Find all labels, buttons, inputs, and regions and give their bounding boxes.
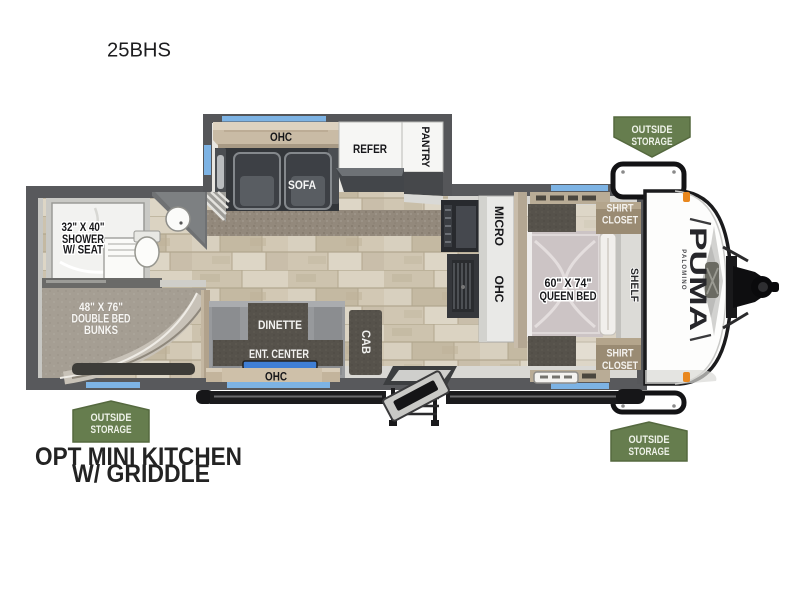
svg-text:STORAGE: STORAGE	[629, 446, 670, 458]
svg-text:OUTSIDE: OUTSIDE	[629, 434, 670, 446]
svg-text:STORAGE: STORAGE	[632, 136, 673, 148]
svg-text:QUEEN BED: QUEEN BED	[540, 289, 597, 303]
svg-text:60" X 74": 60" X 74"	[545, 276, 592, 290]
svg-text:OUTSIDE: OUTSIDE	[632, 124, 673, 136]
svg-text:BUNKS: BUNKS	[84, 323, 118, 337]
svg-text:PUMA: PUMA	[684, 227, 711, 331]
svg-text:OUTSIDE: OUTSIDE	[91, 412, 132, 424]
svg-text:W/ GRIDDLE: W/ GRIDDLE	[72, 460, 210, 488]
svg-text:REFER: REFER	[353, 142, 387, 156]
svg-text:CAB: CAB	[359, 330, 371, 354]
svg-text:SHELF: SHELF	[628, 268, 640, 302]
svg-text:OHC: OHC	[492, 276, 504, 303]
svg-text:CLOSET: CLOSET	[602, 360, 638, 372]
svg-text:ENT. CENTER: ENT. CENTER	[249, 347, 309, 361]
svg-text:OHC: OHC	[270, 130, 292, 144]
svg-text:MICRO: MICRO	[492, 206, 504, 246]
svg-text:DINETTE: DINETTE	[258, 318, 302, 332]
svg-text:SHIRT: SHIRT	[607, 203, 634, 215]
svg-text:SHIRT: SHIRT	[607, 348, 634, 360]
svg-text:W/ SEAT: W/ SEAT	[63, 243, 104, 257]
svg-text:PALOMINO: PALOMINO	[680, 249, 686, 291]
svg-text:PANTRY: PANTRY	[419, 127, 431, 169]
svg-text:SOFA: SOFA	[288, 178, 316, 192]
svg-text:STORAGE: STORAGE	[91, 424, 132, 436]
svg-text:25BHS: 25BHS	[107, 40, 171, 62]
svg-text:OHC: OHC	[265, 370, 287, 384]
svg-text:CLOSET: CLOSET	[602, 215, 638, 227]
